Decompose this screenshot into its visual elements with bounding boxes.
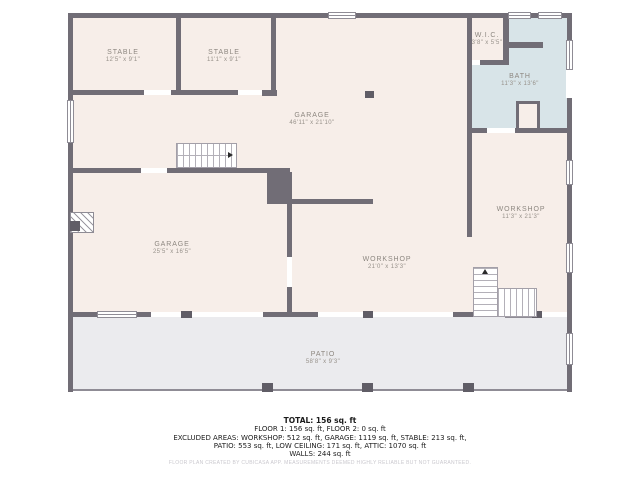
wall-segment: [287, 204, 292, 257]
window: [508, 12, 531, 19]
wall-segment: [503, 13, 509, 65]
wall-segment: [567, 98, 572, 160]
summary-total: TOTAL: 156 sq. ft: [0, 417, 640, 425]
door-opening: [287, 257, 292, 287]
door-opening: [472, 60, 480, 65]
wall-segment: [467, 13, 472, 237]
wall-segment: [68, 168, 141, 173]
room-dimensions: 58'8" x 9'3": [306, 359, 340, 365]
wall-segment: [467, 128, 487, 133]
room-dimensions: 12'5" x 9'1": [106, 57, 140, 63]
room-dimensions: 11'3" x 13'6": [501, 81, 539, 87]
wall-segment: [567, 185, 572, 243]
chimney-flue: [70, 221, 80, 231]
room-name: WORKSHOP: [497, 206, 546, 213]
room-name: GARAGE: [153, 241, 191, 248]
wall-segment: [68, 312, 97, 317]
room-name: GARAGE: [289, 112, 334, 119]
door-opening: [373, 312, 453, 317]
room-name: STABLE: [106, 49, 140, 56]
bath-nook: [516, 101, 540, 128]
room-label-stable-2: STABLE 11'1" x 9'1": [207, 49, 241, 63]
room-name: WORKSHOP: [363, 256, 412, 263]
wall-segment: [356, 13, 508, 18]
room-label-workshop-right: WORKSHOP 11'3" x 21'3": [497, 206, 546, 220]
room-dimensions: 11'3" x 21'3": [497, 214, 546, 220]
wall-segment: [515, 128, 567, 133]
wall-segment: [171, 90, 238, 95]
room-dimensions: 3'8" x 5'5": [472, 40, 503, 46]
room-label-bath: BATH 11'3" x 13'6": [501, 73, 539, 87]
wall-segment: [262, 90, 277, 96]
post: [363, 311, 373, 318]
post: [365, 91, 374, 98]
wall-segment: [68, 90, 144, 95]
window: [328, 12, 356, 19]
room-dimensions: 21'0" x 13'3": [363, 264, 412, 270]
post: [181, 311, 192, 318]
summary-excluded-line-2: PATIO: 553 sq. ft, LOW CEILING: 171 sq. …: [0, 442, 640, 450]
wall-segment: [68, 143, 73, 392]
room-label-garage-left: GARAGE 25'5" x 16'5": [153, 241, 191, 255]
summary-floors: FLOOR 1: 156 sq. ft, FLOOR 2: 0 sq. ft: [0, 425, 640, 433]
door-opening: [487, 128, 515, 133]
door-opening: [566, 70, 573, 98]
disclaimer-text: FLOOR PLAN CREATED BY CUBICASA APP. MEAS…: [0, 460, 640, 466]
post: [362, 383, 373, 392]
wall-segment: [68, 13, 328, 18]
summary-excluded-line-1: EXCLUDED AREAS: WORKSHOP: 512 sq. ft, GA…: [0, 434, 640, 442]
wall-segment: [567, 365, 572, 392]
wall-segment: [531, 13, 538, 18]
window: [67, 100, 74, 143]
wall-segment: [263, 312, 318, 317]
door-opening: [144, 90, 171, 95]
window: [566, 40, 573, 70]
wall-segment: [137, 312, 151, 317]
room-name: STABLE: [207, 49, 241, 56]
window: [566, 160, 573, 185]
wall-segment: [267, 172, 292, 204]
wall-segment: [480, 60, 509, 65]
wall-segment: [176, 13, 181, 95]
area-summary: TOTAL: 156 sq. ft FLOOR 1: 156 sq. ft, F…: [0, 417, 640, 458]
wall-segment: [509, 42, 543, 48]
wall-segment: [68, 13, 73, 100]
stair-guide-line: [177, 155, 229, 156]
wall-segment: [567, 13, 572, 40]
room-dimensions: 11'1" x 9'1": [207, 57, 241, 63]
room-label-garage-top: GARAGE 46'11" x 21'10": [289, 112, 334, 126]
window: [566, 243, 573, 273]
post: [463, 383, 474, 392]
door-opening: [238, 90, 262, 95]
room-label-patio: PATIO 58'8" x 9'3": [306, 351, 340, 365]
post: [262, 383, 273, 392]
wall-segment: [567, 273, 572, 333]
room-label-workshop-center: WORKSHOP 21'0" x 13'3": [363, 256, 412, 270]
room-name: PATIO: [306, 351, 340, 358]
summary-walls: WALLS: 244 sq. ft: [0, 450, 640, 458]
room-name: W.I.C.: [472, 32, 503, 39]
room-dimensions: 46'11" x 21'10": [289, 120, 334, 126]
window: [538, 12, 562, 19]
room-dimensions: 25'5" x 16'5": [153, 249, 191, 255]
window: [97, 311, 137, 318]
window: [566, 333, 573, 365]
staircase-workshop-flight-run: [497, 288, 537, 317]
room-label-wic: W.I.C. 3'8" x 5'5": [472, 32, 503, 46]
door-opening: [192, 312, 263, 317]
wall-segment: [271, 13, 276, 96]
room-name: BATH: [501, 73, 539, 80]
door-opening: [541, 312, 567, 317]
wall-segment: [292, 199, 373, 204]
patio-edge-line: [68, 389, 572, 391]
room-label-stable-1: STABLE 12'5" x 9'1": [106, 49, 140, 63]
door-opening: [151, 312, 181, 317]
staircase-workshop-flight-up: [473, 267, 498, 317]
wall-segment: [287, 287, 292, 312]
stair-direction-arrow-icon: [482, 269, 488, 274]
floor-plan-canvas: STABLE 12'5" x 9'1" STABLE 11'1" x 9'1" …: [0, 0, 640, 480]
door-opening: [318, 312, 363, 317]
door-opening: [141, 168, 167, 173]
stair-direction-arrow-icon: [228, 152, 233, 158]
